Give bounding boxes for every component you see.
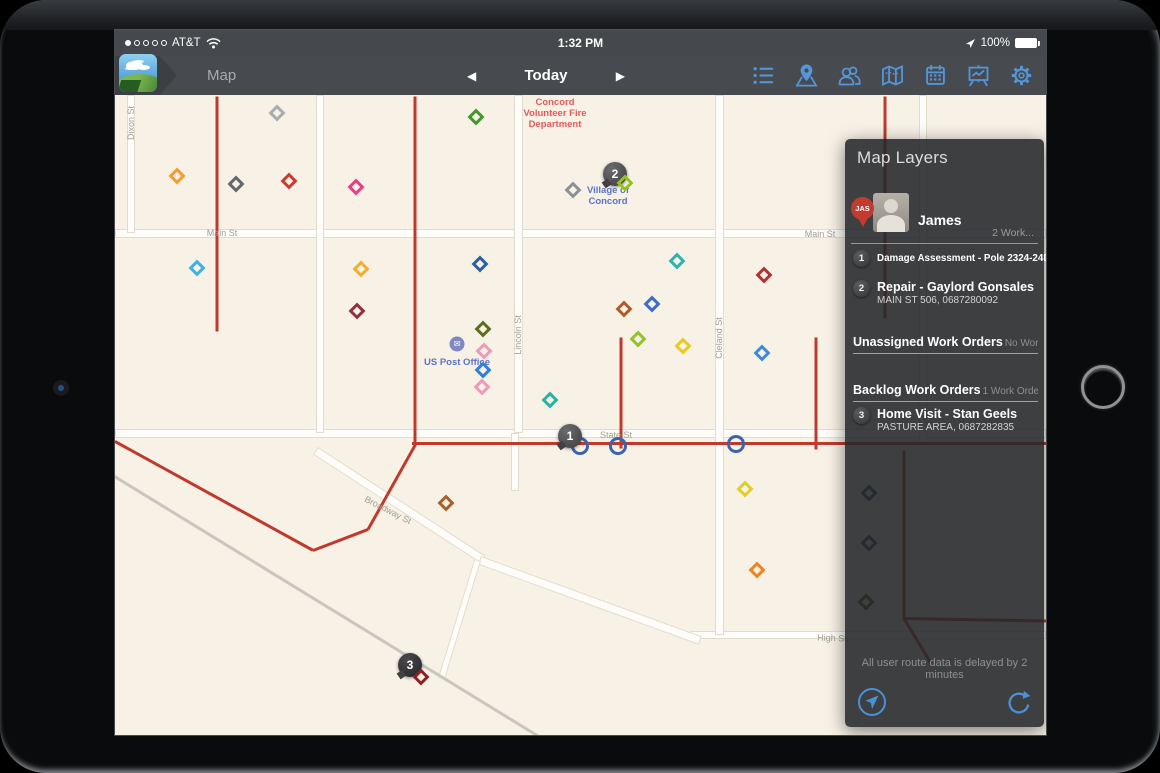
road [313,447,486,563]
work-order-diamond[interactable] [756,267,773,284]
work-order-diamond[interactable] [472,256,489,273]
road [715,95,724,635]
work-order-row[interactable]: 1 Damage Assessment - Pole 2324-24D7 [853,250,1040,267]
work-order-badge: 3 [853,407,870,424]
work-order-row[interactable]: 3 Home Visit - Stan Geels PASTURE AREA, … [853,407,1040,433]
map-pin-icon[interactable] [793,62,820,89]
work-order-diamond[interactable] [669,253,686,270]
street-label: Main St [207,228,238,238]
home-button[interactable] [1081,365,1125,409]
street-label: Lincoln St [513,315,523,355]
refresh-icon[interactable] [1005,690,1032,717]
navigate-icon[interactable] [857,687,887,717]
page-title: Map [207,56,236,95]
work-order-title: Repair - Gaylord Gonsales [877,280,1034,294]
avatar[interactable] [873,193,909,232]
railroad-track [115,475,558,735]
app-logo[interactable] [119,54,157,92]
work-order-badge: 2 [853,280,870,297]
calendar-icon[interactable] [922,62,949,89]
section-title: Unassigned Work Orders [853,335,1003,349]
road [514,95,523,433]
location-arrow-icon [965,38,976,49]
work-order-diamond[interactable] [475,321,492,338]
power-line [414,97,417,447]
panel-title: Map Layers [857,148,948,168]
divider [851,243,1038,244]
bezel-top-highlight [0,0,1160,30]
work-order-diamond[interactable] [348,179,365,196]
users-icon[interactable] [836,62,863,89]
prev-day-button[interactable]: ◀ [467,69,476,83]
work-order-diamond[interactable] [189,260,206,277]
user-workorder-count: 2 Work... [992,227,1034,239]
map-icon[interactable] [879,62,906,89]
work-order-diamond[interactable] [474,379,491,396]
navigation-toolbar: Map ◀ Today ▶ [115,56,1046,95]
section-meta: 1 Work Order [983,386,1038,397]
poi-label: Concord Volunteer Fire Department [523,97,586,131]
work-order-row[interactable]: 2 Repair - Gaylord Gonsales MAIN ST 506,… [853,280,1040,306]
road [316,95,324,433]
work-order-diamond[interactable] [349,303,366,320]
street-label: High St [817,632,847,643]
street-label: Main St [805,229,836,239]
work-order-diamond[interactable] [468,109,485,126]
battery-icon [1015,38,1037,48]
work-order-diamond[interactable] [616,301,633,318]
list-view-icon[interactable] [750,62,777,89]
section-meta: No Work O... [1005,338,1038,349]
front-camera [53,380,69,396]
work-order-subtitle: PASTURE AREA, 0687282835 [877,422,1017,433]
clock-label: 1:32 PM [115,30,1046,56]
work-order-diamond[interactable] [644,296,661,313]
section-title: Backlog Work Orders [853,383,981,397]
section-backlog[interactable]: Backlog Work Orders 1 Work Order [853,383,1038,402]
user-map-pin-icon: JAS [851,197,874,220]
date-navigator: ◀ Today ▶ [467,56,625,95]
street-label: Cleland St [714,317,724,359]
work-order-diamond[interactable] [749,562,766,579]
section-unassigned[interactable]: Unassigned Work Orders No Work O... [853,335,1038,354]
work-order-diamond[interactable] [565,182,582,199]
work-order-diamond[interactable] [228,176,245,193]
map-layers-panel: Map Layers JAS James 2 Work... 1 Damage … [845,139,1044,727]
next-day-button[interactable]: ▶ [616,69,625,83]
work-order-diamond[interactable] [542,392,559,409]
work-order-title: Damage Assessment - Pole 2324-24D7 [877,250,1046,264]
power-line [216,97,219,332]
work-order-title: Home Visit - Stan Geels [877,407,1017,421]
road [438,559,481,680]
route-delay-note: All user route data is delayed by 2 minu… [845,657,1044,681]
work-order-diamond[interactable] [630,331,647,348]
work-order-diamond[interactable] [281,173,298,190]
work-order-diamond[interactable] [353,261,370,278]
power-line [312,528,368,552]
route-stop-circle[interactable] [727,435,745,453]
app-screen: AT&T 1:32 PM 100% Map [115,30,1046,735]
today-label[interactable]: Today [524,67,567,84]
work-order-badge: 1 [853,250,870,267]
post-office-icon: ✉ [450,337,465,352]
status-bar: AT&T 1:32 PM 100% [115,30,1046,56]
route-stop-circle[interactable] [609,437,627,455]
ipad-device-frame: AT&T 1:32 PM 100% Map [0,0,1160,773]
battery-percent-label: 100% [981,37,1010,49]
work-order-diamond[interactable] [754,345,771,362]
map-badge-1[interactable]: 1 [558,424,582,448]
road [478,556,702,645]
power-line [815,338,818,450]
user-name[interactable]: James [918,212,962,228]
work-order-diamond[interactable] [269,105,286,122]
work-order-diamond[interactable] [438,495,455,512]
work-order-diamond[interactable] [675,338,692,355]
reports-icon[interactable] [965,62,992,89]
street-label: Dixon St [126,106,136,140]
work-order-diamond[interactable] [169,168,186,185]
work-order-subtitle: MAIN ST 506, 0687280092 [877,295,1034,306]
work-order-diamond[interactable] [737,481,754,498]
settings-gear-icon[interactable] [1008,62,1035,89]
